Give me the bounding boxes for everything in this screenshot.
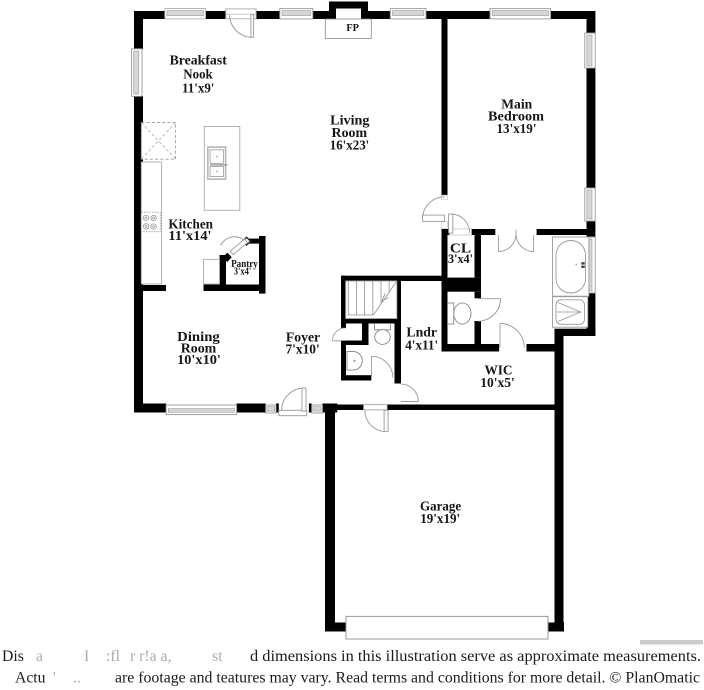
svg-text::fl: :fl xyxy=(106,648,121,665)
svg-text:Dis: Dis xyxy=(2,648,24,665)
svg-text:I: I xyxy=(84,648,89,665)
svg-text:19'x19': 19'x19' xyxy=(420,511,460,526)
svg-text:Nook: Nook xyxy=(183,67,213,82)
svg-text:16'x23': 16'x23' xyxy=(330,138,370,153)
svg-text:Breakfast: Breakfast xyxy=(170,53,228,68)
svg-text:a: a xyxy=(36,648,43,665)
svg-text:10'x5': 10'x5' xyxy=(480,375,515,390)
svg-text:4'x11': 4'x11' xyxy=(405,337,438,352)
svg-text:10'x10': 10'x10' xyxy=(177,352,221,367)
svg-text:7'x10': 7'x10' xyxy=(285,341,319,356)
svg-text:': ' xyxy=(53,670,56,687)
svg-text:3'x4': 3'x4' xyxy=(448,252,473,266)
svg-text:Actu: Actu xyxy=(15,670,46,687)
svg-text:are footage and teatures may v: are footage and teatures may vary. Read … xyxy=(115,670,700,687)
svg-text:11'x9': 11'x9' xyxy=(182,80,214,95)
svg-text:13'x19': 13'x19' xyxy=(497,121,537,136)
svg-text:r r!a a,: r r!a a, xyxy=(130,648,171,665)
svg-text:..: .. xyxy=(73,670,81,687)
svg-text:d dimensions in this illustrat: d dimensions in this illustration serve … xyxy=(250,648,701,665)
svg-text:3'x4': 3'x4' xyxy=(234,267,252,278)
svg-text:FP: FP xyxy=(346,23,359,34)
svg-text:11'x14': 11'x14' xyxy=(168,228,211,243)
svg-text:st: st xyxy=(212,648,223,665)
